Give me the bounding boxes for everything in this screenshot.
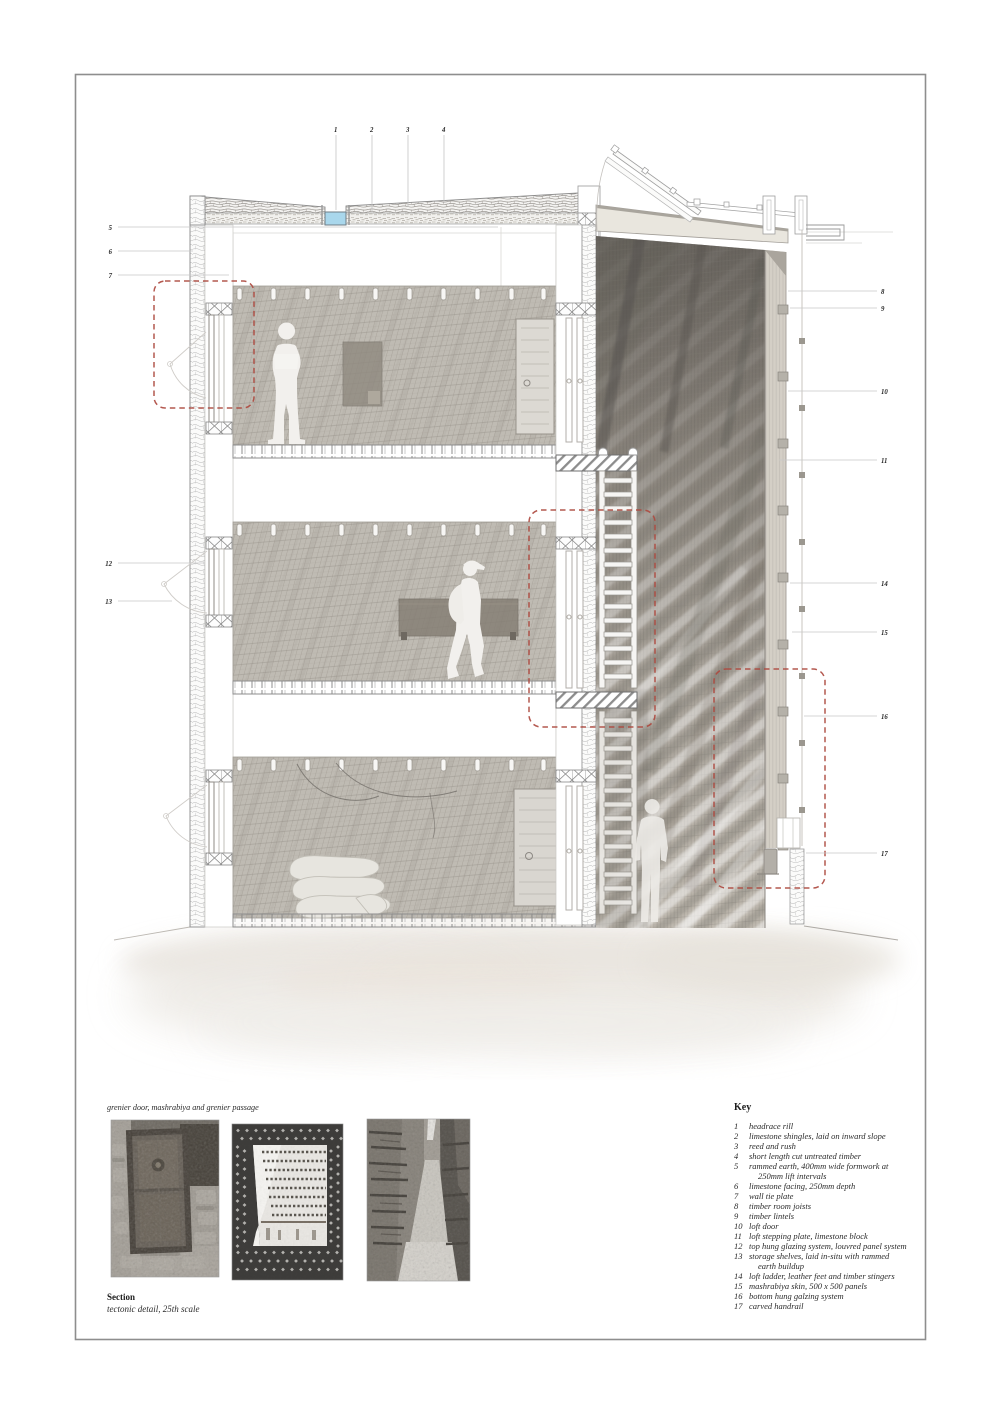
svg-text:6: 6 — [109, 249, 113, 256]
svg-text:9: 9 — [881, 306, 885, 313]
svg-text:5: 5 — [109, 225, 113, 232]
svg-text:Key: Key — [734, 1102, 751, 1113]
svg-text:3: 3 — [405, 127, 410, 134]
svg-text:14: 14 — [734, 1271, 743, 1281]
svg-text:250mm lift intervals: 250mm lift intervals — [758, 1171, 827, 1181]
svg-text:10: 10 — [734, 1221, 743, 1231]
svg-text:earth buildup: earth buildup — [758, 1261, 804, 1271]
svg-text:7: 7 — [734, 1191, 739, 1201]
svg-text:short length cut untreated tim: short length cut untreated timber — [749, 1151, 862, 1161]
svg-text:3: 3 — [733, 1141, 738, 1151]
svg-text:bottom hung galzing system: bottom hung galzing system — [749, 1291, 844, 1301]
svg-text:17: 17 — [734, 1301, 743, 1311]
svg-text:1: 1 — [734, 1121, 738, 1131]
svg-text:13: 13 — [105, 599, 112, 606]
svg-text:12: 12 — [105, 561, 112, 568]
svg-text:16: 16 — [734, 1291, 743, 1301]
svg-text:2: 2 — [734, 1131, 739, 1141]
svg-text:13: 13 — [734, 1251, 743, 1261]
svg-text:limestone facing, 250mm depth: limestone facing, 250mm depth — [749, 1181, 855, 1191]
svg-text:grenier door, mashrabiya and g: grenier door, mashrabiya and grenier pas… — [107, 1103, 259, 1112]
svg-text:1: 1 — [334, 127, 337, 134]
svg-text:8: 8 — [881, 289, 885, 296]
svg-text:11: 11 — [881, 458, 887, 465]
svg-text:16: 16 — [881, 714, 888, 721]
svg-text:9: 9 — [734, 1211, 739, 1221]
svg-text:top hung glazing system, louvr: top hung glazing system, louvred panel s… — [749, 1241, 907, 1251]
svg-text:loft stepping plate, limestone: loft stepping plate, limestone block — [749, 1231, 868, 1241]
svg-text:timber room joists: timber room joists — [749, 1201, 812, 1211]
svg-text:4: 4 — [441, 127, 446, 134]
svg-text:limestone shingles, laid on in: limestone shingles, laid on inward slope — [749, 1131, 886, 1141]
svg-text:tectonic detail, 25th scale: tectonic detail, 25th scale — [107, 1304, 199, 1314]
svg-text:5: 5 — [734, 1161, 738, 1171]
svg-text:carved handrail: carved handrail — [749, 1301, 804, 1311]
svg-text:loft door: loft door — [749, 1221, 779, 1231]
svg-text:15: 15 — [734, 1281, 743, 1291]
svg-text:storage shelves, laid in-situ: storage shelves, laid in-situ with ramme… — [749, 1251, 890, 1261]
svg-text:8: 8 — [734, 1201, 739, 1211]
svg-text:4: 4 — [734, 1151, 739, 1161]
svg-text:15: 15 — [881, 630, 888, 637]
svg-text:2: 2 — [369, 127, 374, 134]
svg-text:10: 10 — [881, 389, 888, 396]
svg-text:timber lintels: timber lintels — [749, 1211, 795, 1221]
svg-text:headrace rill: headrace rill — [749, 1121, 794, 1131]
svg-text:7: 7 — [109, 273, 113, 280]
svg-text:17: 17 — [881, 851, 888, 858]
svg-text:11: 11 — [734, 1231, 742, 1241]
svg-text:12: 12 — [734, 1241, 743, 1251]
svg-text:loft ladder, leather feet and: loft ladder, leather feet and timber sti… — [749, 1271, 895, 1281]
svg-text:wall tie plate: wall tie plate — [749, 1191, 794, 1201]
svg-text:Section: Section — [107, 1292, 135, 1302]
svg-text:14: 14 — [881, 581, 888, 588]
svg-text:mashrabiya skin, 500 x 500 pan: mashrabiya skin, 500 x 500 panels — [749, 1281, 868, 1291]
svg-text:reed and rush: reed and rush — [749, 1141, 796, 1151]
svg-text:rammed earth, 400mm wide formw: rammed earth, 400mm wide formwork at — [749, 1161, 889, 1171]
svg-text:6: 6 — [734, 1181, 739, 1191]
